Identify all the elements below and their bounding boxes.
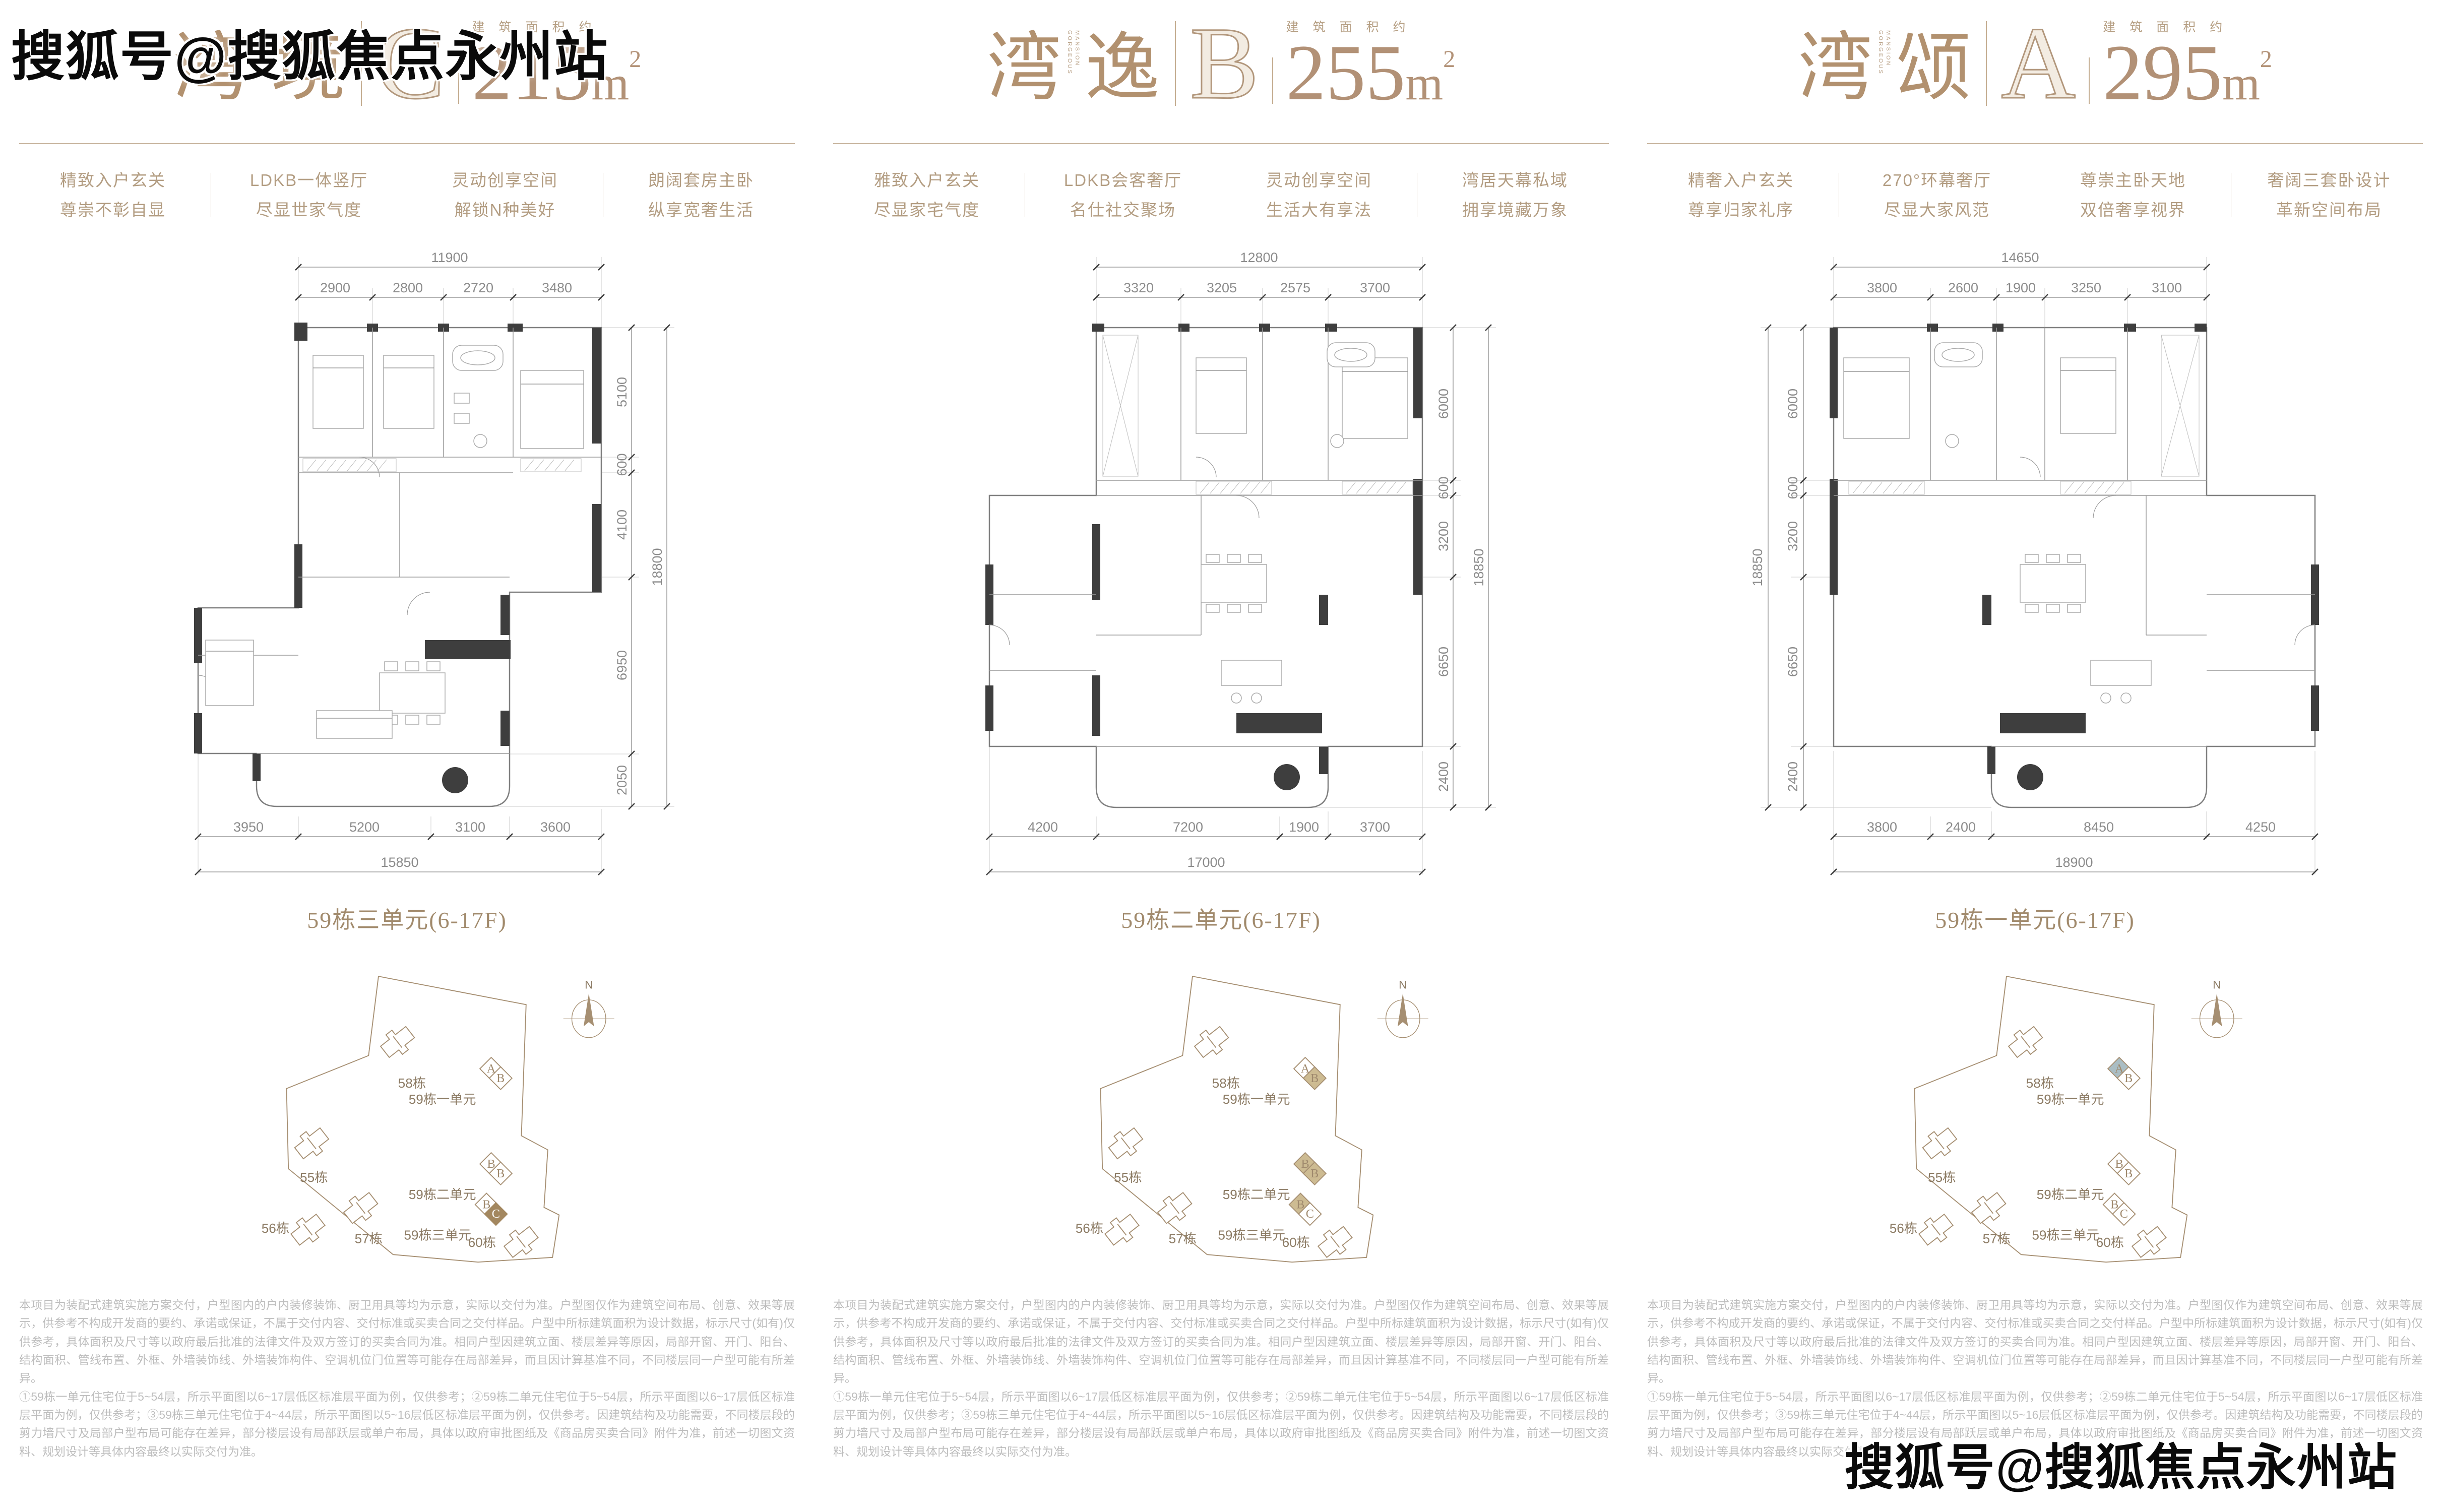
svg-text:2575: 2575 [1280, 280, 1310, 295]
svg-text:3250: 3250 [2071, 280, 2101, 295]
svg-text:C: C [1305, 1207, 1313, 1221]
svg-text:B: B [1301, 1157, 1309, 1171]
svg-text:59栋二单元: 59栋二单元 [1222, 1187, 1290, 1202]
site-unit-59-1: AB [2108, 1057, 2140, 1090]
feature-list: 雅致入户玄关尽显家宅气度 LDKB会客奢厅名仕社交聚场 灵动创享空间生活大有享法… [829, 157, 1613, 233]
floorplan-poster: 湾 GORGEOUSMANSION 境 C 建筑面积约 215m2 精致入户玄关… [0, 0, 2442, 1512]
building-57 [1968, 1188, 2009, 1228]
site-unit-59-2: BB [480, 1153, 512, 1185]
svg-text:600: 600 [1436, 476, 1451, 499]
svg-text:1900: 1900 [1288, 820, 1319, 835]
svg-text:18850: 18850 [1471, 548, 1486, 586]
title-en-word-2: MANSION [1074, 30, 1080, 97]
watermark-bottom-right: 搜狐号@搜狐焦点永州站 [1844, 1427, 2398, 1499]
area-block: 建筑面积约 295m2 [2103, 17, 2272, 105]
svg-text:B: B [2115, 1157, 2123, 1171]
site-plan-svg: 58栋 55栋 57栋 56栋 60栋 AB 59栋一单元 BB 59栋二单 [148, 948, 667, 1278]
svg-text:2600: 2600 [1948, 280, 1978, 295]
svg-text:2720: 2720 [463, 280, 493, 295]
floor-plan: 14650 3800 2600 1900 3250 3100 6000 [1628, 242, 2442, 895]
svg-text:14650: 14650 [2001, 250, 2039, 265]
site-plan: 58栋 55栋 57栋 56栋 60栋 AB 59栋一单元 BB 59栋二单 [0, 948, 814, 1281]
svg-text:C: C [491, 1207, 499, 1221]
svg-text:4200: 4200 [1027, 820, 1057, 835]
svg-text:3950: 3950 [233, 820, 263, 835]
site-plan: 58栋 55栋 57栋 56栋 60栋 AB 59栋一单元 BB 59栋二单 [1628, 948, 2442, 1281]
svg-text:600: 600 [614, 453, 630, 476]
feature-1: 雅致入户玄关尽显家宅气度 [829, 165, 1025, 225]
feature-2: LDKB会客奢厅名仕社交聚场 [1025, 165, 1221, 225]
building-55 [1105, 1123, 1146, 1163]
site-plan-svg: 58栋 55栋 57栋 56栋 60栋 AB 59栋一单元 BB 59栋二单 [1776, 948, 2295, 1278]
svg-text:3205: 3205 [1206, 280, 1236, 295]
svg-text:6000: 6000 [1785, 389, 1800, 419]
site-boundary [1914, 976, 2187, 1262]
plan-label: 59栋三单元(6-17F) [0, 902, 814, 935]
svg-text:58栋: 58栋 [1212, 1076, 1239, 1091]
svg-text:3200: 3200 [1436, 521, 1451, 551]
svg-text:B: B [496, 1072, 505, 1085]
feature-4: 奢阔三套卧设计革新空间布局 [2231, 165, 2427, 225]
feature-2: LDKB一体竖厅尽显世家气度 [211, 165, 407, 225]
floor-plan-svg: 14650 3800 2600 1900 3250 3100 6000 [1665, 242, 2406, 892]
svg-text:56栋: 56栋 [261, 1221, 289, 1236]
svg-text:7200: 7200 [1172, 820, 1203, 835]
dim-top: 11900 2900 2800 2720 3480 [295, 250, 604, 328]
svg-text:5100: 5100 [614, 377, 630, 407]
header-rule [19, 143, 795, 144]
svg-text:55栋: 55栋 [1114, 1170, 1142, 1185]
svg-text:B: B [2124, 1072, 2133, 1085]
svg-text:59栋三单元: 59栋三单元 [404, 1227, 471, 1242]
svg-text:2400: 2400 [1945, 820, 1975, 835]
svg-text:5200: 5200 [349, 820, 379, 835]
svg-text:58栋: 58栋 [398, 1076, 425, 1091]
plan-label: 59栋一单元(6-17F) [1628, 902, 2442, 935]
site-unit-59-1: AB [480, 1057, 512, 1090]
svg-text:B: B [482, 1198, 490, 1212]
title-en-word-1: GORGEOUS [1067, 30, 1073, 97]
site-boundary [286, 976, 559, 1262]
site-plan-svg: 58栋 55栋 57栋 56栋 60栋 AB 59栋一单元 BB 59栋二单 [962, 948, 1481, 1278]
site-unit-59-2: BB [1294, 1153, 1326, 1185]
title-en-word-1: GORGEOUS [1877, 30, 1884, 97]
site-unit-59-2: BB [2108, 1153, 2140, 1185]
plan-label: 59栋二单元(6-17F) [814, 902, 1628, 935]
floor-plan: 12800 3320 3205 2575 3700 6000 600 [814, 242, 1628, 895]
title-char-1: 湾 [987, 31, 1061, 106]
svg-text:2900: 2900 [320, 280, 350, 295]
plan-group: 12800 3320 3205 2575 3700 6000 600 [985, 250, 1496, 875]
building-57 [1154, 1188, 1195, 1228]
panel-header: 湾 GORGEOUSMANSION 颂 A 建筑面积约 295m2 [1628, 0, 2442, 137]
svg-text:3100: 3100 [2151, 280, 2181, 295]
svg-text:12800: 12800 [1240, 250, 1278, 265]
dim-top: 12800 3320 3205 2575 3700 [1093, 250, 1425, 328]
svg-text:57栋: 57栋 [1982, 1231, 2010, 1246]
panel-wanyi-b: 湾 GORGEOUSMANSION 逸 B 建筑面积约 255m2 雅致入户玄关… [814, 0, 1628, 1512]
svg-text:3100: 3100 [455, 820, 485, 835]
title-divider [1175, 21, 1176, 106]
svg-text:57栋: 57栋 [1168, 1231, 1196, 1246]
svg-text:N: N [2213, 978, 2221, 991]
svg-text:2400: 2400 [1785, 762, 1800, 792]
title-row: 湾 GORGEOUSMANSION 颂 A 建筑面积约 295m2 [1628, 17, 2442, 106]
watermark-top-left: 搜狐号@搜狐焦点永州站 [11, 13, 608, 91]
panel-header: 湾 GORGEOUSMANSION 逸 B 建筑面积约 255m2 [814, 0, 1628, 137]
svg-text:2400: 2400 [1436, 762, 1451, 792]
building-56 [1101, 1210, 1142, 1249]
floor-plan: 11900 2900 2800 2720 3480 5100 [0, 242, 814, 895]
building-56 [1915, 1210, 1956, 1249]
svg-text:N: N [585, 978, 593, 991]
feature-3: 灵动创享空间生活大有享法 [1221, 165, 1417, 225]
building-55 [1919, 1123, 1960, 1163]
title-row: 湾 GORGEOUSMANSION 逸 B 建筑面积约 255m2 [814, 17, 1628, 106]
svg-text:2800: 2800 [392, 280, 422, 295]
building-58 [1191, 1022, 1232, 1062]
svg-text:55栋: 55栋 [1928, 1170, 1956, 1185]
site-plan: 58栋 55栋 57栋 56栋 60栋 AB 59栋一单元 BB 59栋二单 [814, 948, 1628, 1281]
balcony-table [442, 767, 468, 793]
header-rule [1647, 143, 2423, 144]
title-divider-2 [1272, 57, 1273, 104]
svg-text:58栋: 58栋 [2026, 1076, 2053, 1091]
svg-text:17000: 17000 [1187, 855, 1225, 870]
feature-1: 精致入户玄关尊崇不彰自显 [15, 165, 211, 225]
svg-text:N: N [1399, 978, 1407, 991]
area-block: 建筑面积约 255m2 [1286, 17, 1456, 105]
unit-letter: B [1190, 21, 1259, 106]
building-58 [2005, 1022, 2046, 1062]
svg-text:2050: 2050 [614, 765, 630, 795]
svg-text:3600: 3600 [540, 820, 570, 835]
building-58 [377, 1022, 418, 1062]
svg-text:18850: 18850 [1750, 548, 1765, 586]
title-char-2: 颂 [1896, 31, 1971, 106]
north-compass-icon [563, 993, 614, 1038]
dim-top: 14650 3800 2600 1900 3250 3100 [1831, 250, 2210, 328]
title-char-1: 湾 [1798, 31, 1872, 106]
svg-text:3200: 3200 [1785, 521, 1800, 551]
disclaimer: 本项目为装配式建筑实施方案交付，户型图内的户内装修装饰、厨卫用具等均为示意，实际… [833, 1296, 1609, 1461]
svg-text:B: B [2110, 1198, 2118, 1212]
svg-text:8450: 8450 [2083, 820, 2113, 835]
svg-text:A: A [486, 1062, 495, 1076]
svg-text:59栋一单元: 59栋一单元 [408, 1092, 476, 1107]
svg-text:6000: 6000 [1436, 389, 1451, 419]
feature-list: 精奢入户玄关尊享归家礼序 270°环幕奢厅尽显大家风范 尊崇主卧天地双倍奢享视界… [1643, 157, 2427, 233]
svg-text:B: B [1310, 1072, 1319, 1085]
svg-text:B: B [2124, 1167, 2133, 1180]
floor-plan-svg: 12800 3320 3205 2575 3700 6000 600 [851, 242, 1592, 892]
svg-text:59栋三单元: 59栋三单元 [2032, 1227, 2099, 1242]
svg-text:60栋: 60栋 [2096, 1235, 2123, 1250]
plan-group: 11900 2900 2800 2720 3480 5100 [194, 250, 674, 875]
site-unit-59-3: BC [2103, 1193, 2135, 1226]
site-boundary [1100, 976, 1373, 1262]
svg-text:B: B [1296, 1198, 1304, 1212]
title-english-vertical: GORGEOUSMANSION [1877, 30, 1891, 97]
north-compass-icon [2191, 993, 2242, 1038]
header-rule [833, 143, 1609, 144]
svg-text:4250: 4250 [2245, 820, 2275, 835]
svg-text:11900: 11900 [431, 250, 468, 265]
building-60 [1314, 1222, 1355, 1262]
svg-text:15850: 15850 [381, 855, 418, 870]
svg-text:60栋: 60栋 [468, 1235, 495, 1250]
title-char-2: 逸 [1085, 31, 1160, 106]
svg-text:18900: 18900 [2055, 855, 2093, 870]
site-unit-59-1: AB [1294, 1057, 1326, 1090]
title-en-word-2: MANSION [1885, 30, 1891, 97]
svg-text:55栋: 55栋 [300, 1170, 328, 1185]
unit-letter: A [2001, 21, 2076, 106]
balcony-table [2017, 764, 2043, 790]
feature-list: 精致入户玄关尊崇不彰自显 LDKB一体竖厅尽显世家气度 灵动创享空间解锁N种美好… [15, 157, 799, 233]
svg-text:57栋: 57栋 [354, 1231, 382, 1246]
floor-plan-svg: 11900 2900 2800 2720 3480 5100 [37, 242, 778, 892]
site-unit-59-3: BC [475, 1193, 507, 1226]
building-55 [291, 1123, 332, 1163]
svg-text:56栋: 56栋 [1075, 1221, 1103, 1236]
plan-group: 14650 3800 2600 1900 3250 3100 6000 [1750, 250, 2319, 875]
svg-text:6650: 6650 [1436, 647, 1451, 677]
feature-3: 尊崇主卧天地双倍奢享视界 [2035, 165, 2231, 225]
feature-4: 湾居天幕私域拥享境藏万象 [1417, 165, 1613, 225]
svg-text:18800: 18800 [650, 548, 665, 586]
area-value: 255m2 [1286, 41, 1456, 105]
svg-text:59栋二单元: 59栋二单元 [2036, 1187, 2104, 1202]
building-60 [500, 1222, 541, 1262]
svg-text:3480: 3480 [541, 280, 572, 295]
building-57 [340, 1188, 381, 1228]
svg-text:56栋: 56栋 [1889, 1221, 1917, 1236]
svg-text:C: C [2119, 1207, 2127, 1221]
svg-text:3800: 3800 [1866, 280, 1897, 295]
panel-wansong-a: 湾 GORGEOUSMANSION 颂 A 建筑面积约 295m2 精奢入户玄关… [1628, 0, 2442, 1512]
svg-text:600: 600 [1785, 476, 1800, 499]
svg-text:3700: 3700 [1359, 820, 1390, 835]
svg-text:4100: 4100 [614, 510, 630, 540]
panel-wanjing-c: 湾 GORGEOUSMANSION 境 C 建筑面积约 215m2 精致入户玄关… [0, 0, 814, 1512]
svg-text:60栋: 60栋 [1282, 1235, 1309, 1250]
svg-text:B: B [487, 1157, 495, 1171]
north-compass-icon [1377, 993, 1428, 1038]
title-english-vertical: GORGEOUSMANSION [1067, 30, 1080, 97]
feature-2: 270°环幕奢厅尽显大家风范 [1839, 165, 2035, 225]
building-56 [287, 1210, 328, 1249]
feature-3: 灵动创享空间解锁N种美好 [407, 165, 603, 225]
svg-text:3320: 3320 [1123, 280, 1153, 295]
feature-1: 精奢入户玄关尊享归家礼序 [1643, 165, 1839, 225]
feature-4: 朗阔套房主卧纵享宽奢生活 [603, 165, 799, 225]
svg-text:3700: 3700 [1359, 280, 1390, 295]
site-unit-59-3: BC [1289, 1193, 1321, 1226]
title-divider-2 [2089, 57, 2090, 104]
balcony-table [1274, 764, 1300, 790]
svg-text:59栋二单元: 59栋二单元 [408, 1187, 476, 1202]
svg-text:1900: 1900 [2005, 280, 2035, 295]
svg-text:59栋一单元: 59栋一单元 [1222, 1092, 1290, 1107]
svg-text:59栋三单元: 59栋三单元 [1218, 1227, 1285, 1242]
svg-text:A: A [1300, 1062, 1309, 1076]
svg-text:3800: 3800 [1866, 820, 1897, 835]
svg-text:B: B [1310, 1167, 1319, 1180]
svg-text:B: B [496, 1167, 505, 1180]
area-value: 295m2 [2103, 41, 2272, 105]
svg-text:A: A [2114, 1062, 2123, 1076]
svg-text:59栋一单元: 59栋一单元 [2036, 1092, 2104, 1107]
svg-text:6950: 6950 [614, 650, 630, 680]
title-divider [1986, 21, 1987, 106]
disclaimer: 本项目为装配式建筑实施方案交付，户型图内的户内装修装饰、厨卫用具等均为示意，实际… [19, 1296, 795, 1461]
building-60 [2128, 1222, 2169, 1262]
svg-text:6650: 6650 [1785, 647, 1800, 677]
